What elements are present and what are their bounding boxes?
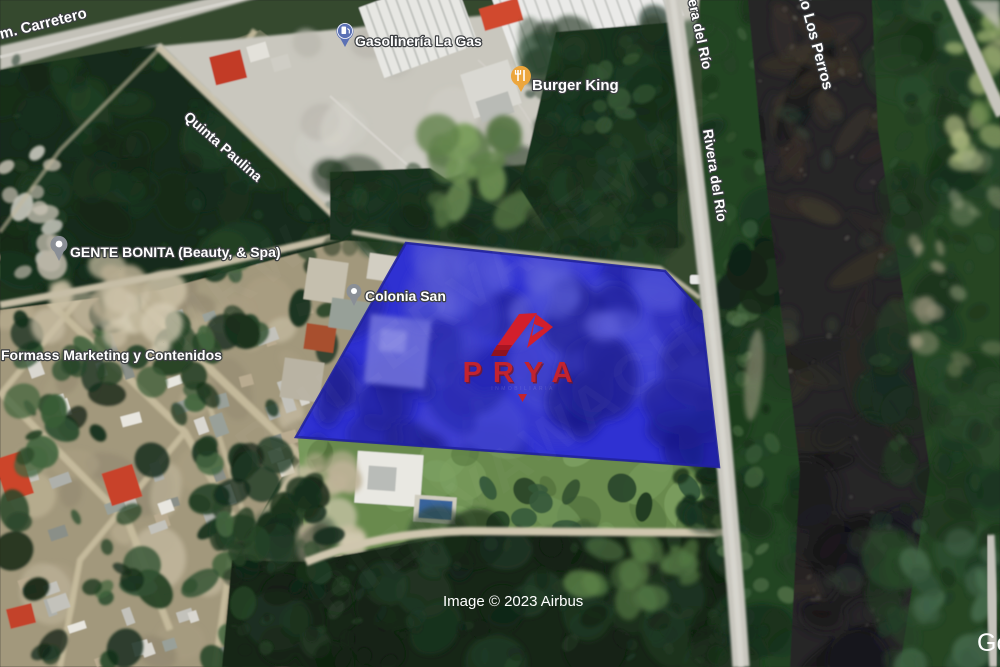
svg-text:Image © 2023 Airbus: Image © 2023 Airbus <box>443 593 583 610</box>
svg-text:Burger King: Burger King <box>532 77 619 94</box>
svg-text:Go: Go <box>977 629 1000 657</box>
svg-text:INMOBILIARIA: INMOBILIARIA <box>491 386 555 392</box>
svg-text:Colonia San: Colonia San <box>365 288 446 304</box>
svg-text:Formass Marketing y Contenidos: Formass Marketing y Contenidos <box>1 347 222 363</box>
svg-text:GENTE BONITA (Beauty, & Spa): GENTE BONITA (Beauty, & Spa) <box>70 244 281 260</box>
svg-text:Gasolinería La Gas: Gasolinería La Gas <box>355 33 482 49</box>
svg-text:PRYA: PRYA <box>463 357 584 389</box>
